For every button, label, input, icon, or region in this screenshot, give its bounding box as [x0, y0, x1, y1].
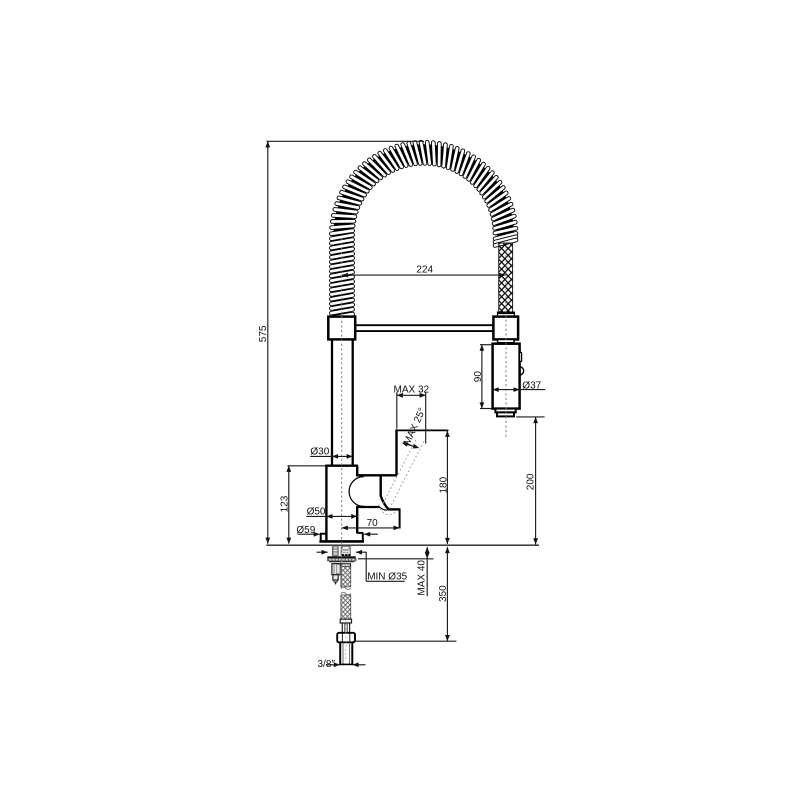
svg-text:575: 575	[258, 325, 269, 342]
svg-text:90: 90	[473, 371, 484, 383]
svg-text:MAX 32: MAX 32	[394, 385, 430, 396]
svg-text:350: 350	[438, 585, 449, 602]
svg-text:MAX 40: MAX 40	[416, 560, 427, 596]
svg-text:70: 70	[367, 518, 379, 529]
svg-text:MIN Ø35: MIN Ø35	[367, 572, 407, 583]
svg-text:224: 224	[416, 265, 433, 276]
svg-text:180: 180	[439, 476, 450, 493]
svg-text:200: 200	[526, 473, 537, 490]
svg-text:123: 123	[280, 495, 291, 512]
svg-text:Ø50: Ø50	[307, 507, 326, 518]
svg-text:Ø30: Ø30	[310, 447, 329, 458]
svg-text:Ø37: Ø37	[522, 380, 541, 391]
svg-text:3/8″: 3/8″	[318, 659, 336, 670]
svg-text:Ø59: Ø59	[296, 525, 315, 536]
